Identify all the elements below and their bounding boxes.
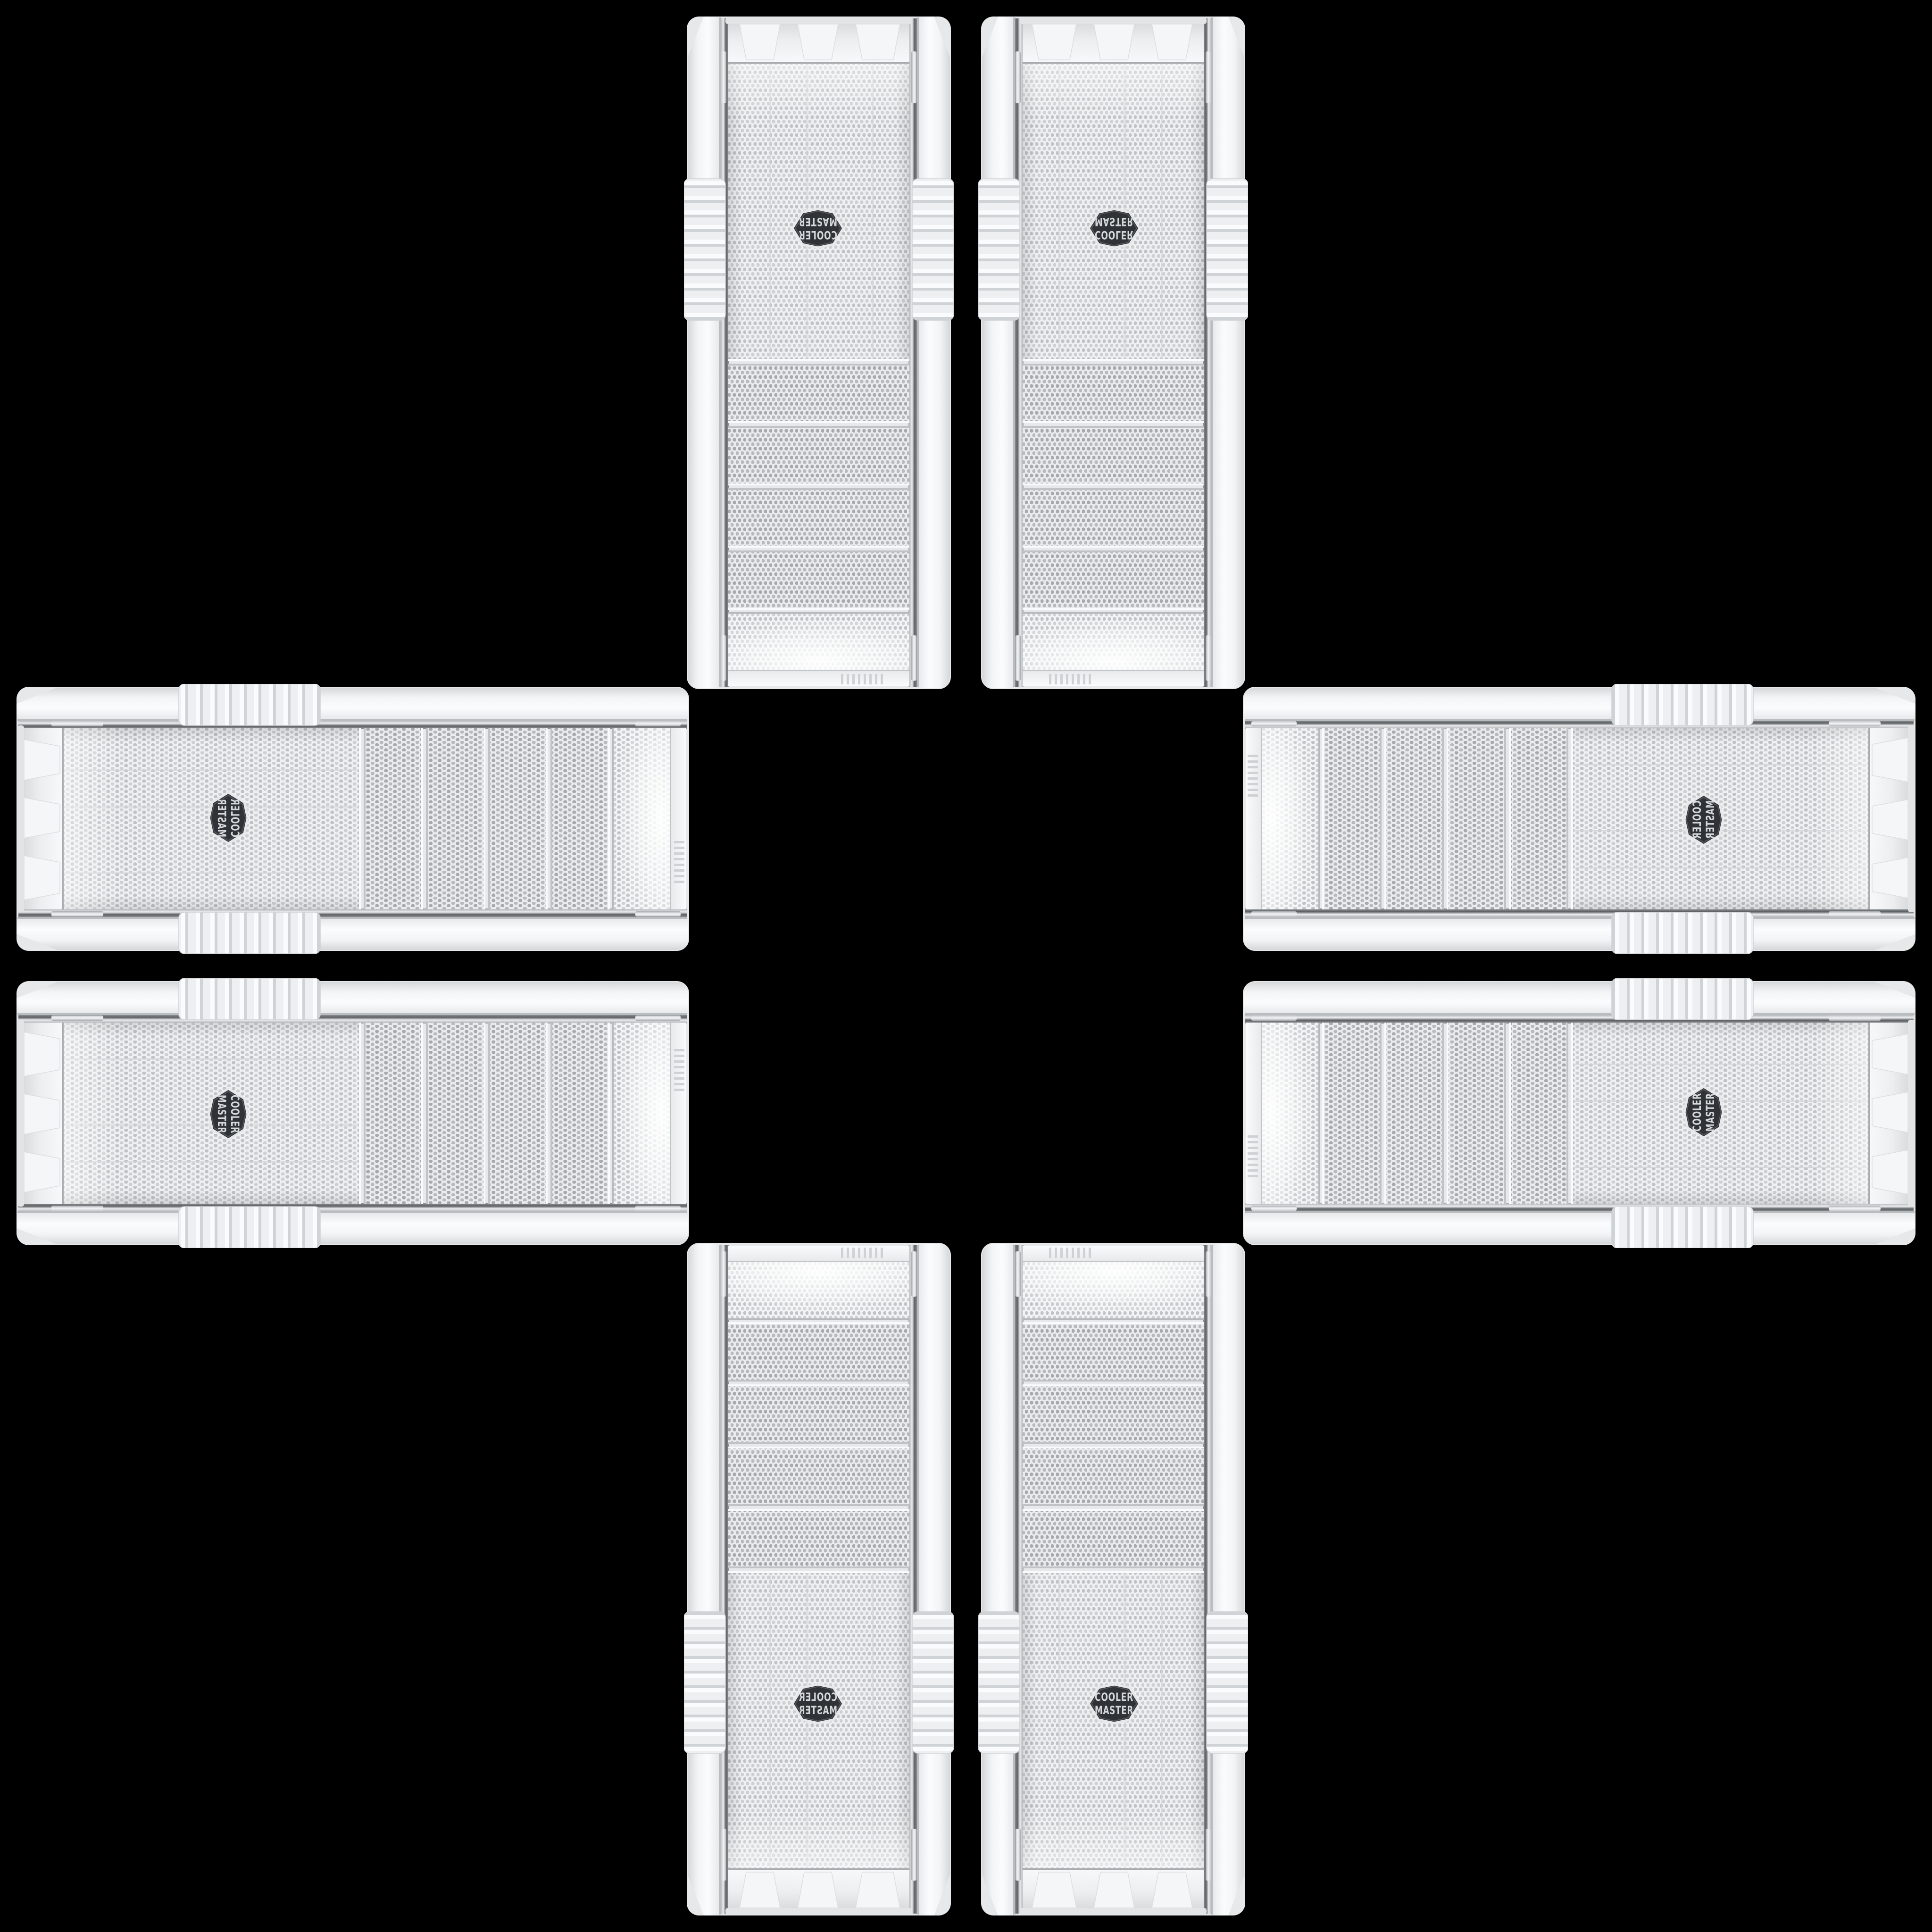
case-top-right (978, 13, 1248, 693)
case-top-left (684, 13, 954, 693)
case-bottom-left (684, 1239, 954, 1919)
case-bottom-right (978, 1239, 1248, 1919)
case-left-bottom (13, 978, 693, 1248)
case-left-top (13, 684, 693, 954)
case-right-bottom (1239, 978, 1919, 1248)
collage-canvas (0, 0, 1932, 1932)
case-right-top (1239, 684, 1919, 954)
